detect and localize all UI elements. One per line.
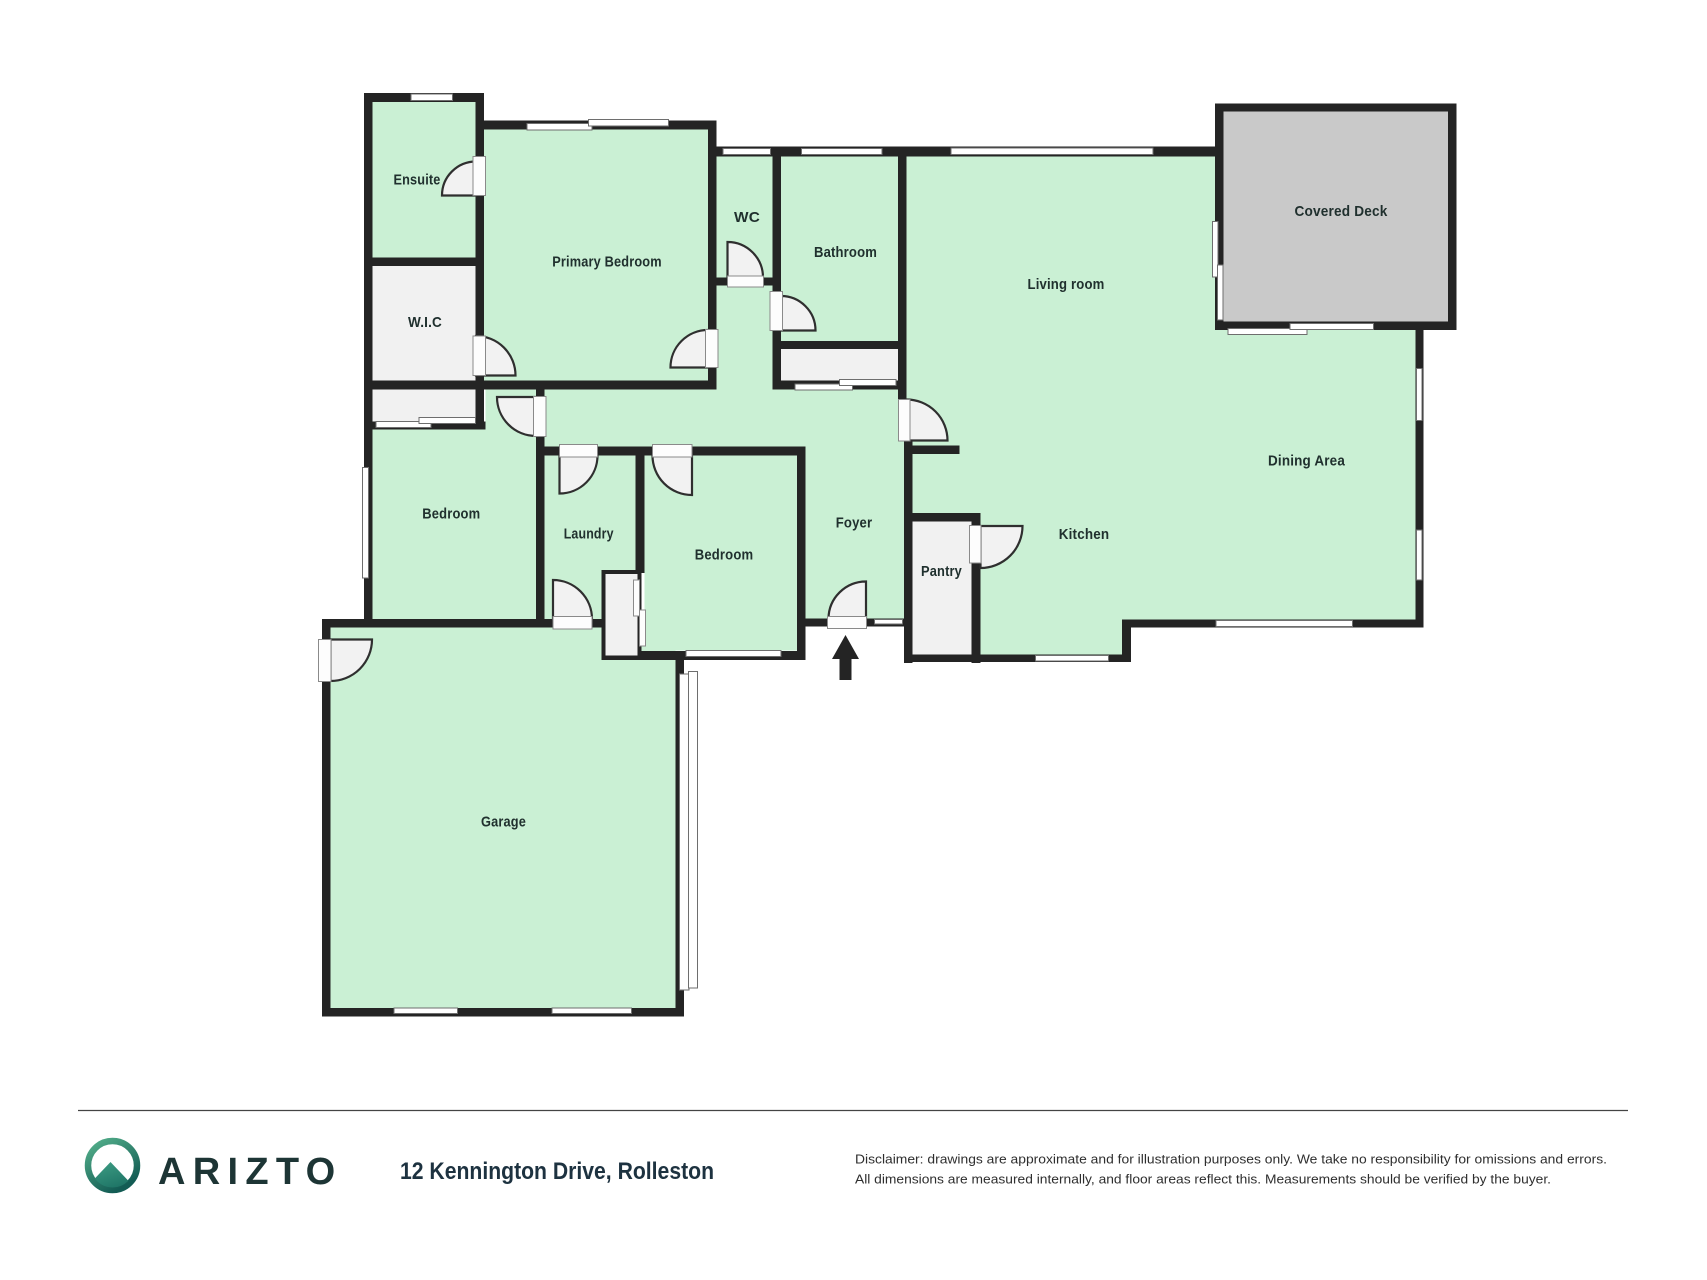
svg-text:Bedroom: Bedroom [695, 547, 754, 564]
svg-text:Ensuite: Ensuite [394, 172, 441, 189]
svg-text:ARIZTO: ARIZTO [158, 1151, 343, 1193]
svg-text:Living room: Living room [1028, 276, 1105, 293]
svg-text:Primary Bedroom: Primary Bedroom [552, 254, 662, 271]
svg-text:12 Kennington Drive, Rolleston: 12 Kennington Drive, Rolleston [400, 1158, 714, 1185]
svg-text:Garage: Garage [481, 814, 526, 831]
svg-text:Pantry: Pantry [921, 563, 962, 580]
svg-text:WC: WC [734, 209, 760, 226]
svg-text:W.I.C: W.I.C [408, 314, 442, 331]
svg-text:All dimensions are measured in: All dimensions are measured internally, … [855, 1172, 1551, 1187]
svg-text:Bedroom: Bedroom [422, 506, 480, 523]
svg-text:Bathroom: Bathroom [814, 244, 877, 261]
svg-text:Kitchen: Kitchen [1059, 526, 1110, 543]
svg-text:Laundry: Laundry [564, 526, 614, 543]
svg-text:Dining Area: Dining Area [1268, 453, 1345, 470]
svg-text:Covered Deck: Covered Deck [1295, 203, 1388, 220]
svg-text:Disclaimer: drawings are appro: Disclaimer: drawings are approximate and… [855, 1152, 1607, 1167]
svg-text:Foyer: Foyer [836, 515, 873, 532]
